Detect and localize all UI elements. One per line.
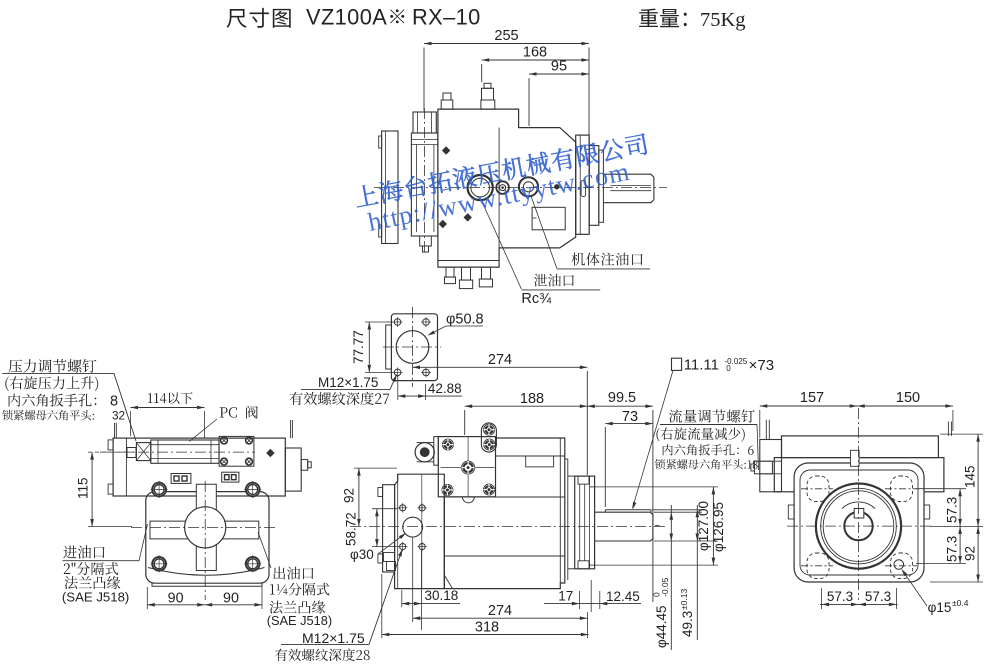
svg-text:318: 318 xyxy=(475,620,499,636)
svg-text:92: 92 xyxy=(342,488,357,503)
svg-text:57.3: 57.3 xyxy=(865,589,891,604)
svg-text:57.3: 57.3 xyxy=(945,536,960,562)
svg-text:99.5: 99.5 xyxy=(608,390,636,406)
svg-text:168: 168 xyxy=(523,45,547,61)
svg-text:92: 92 xyxy=(963,546,978,561)
svg-text:×73: ×73 xyxy=(749,357,774,374)
svg-text:Rc¾: Rc¾ xyxy=(521,291,552,307)
svg-text:(SAE J518): (SAE J518) xyxy=(62,590,129,605)
svg-text:VZ100A: VZ100A xyxy=(306,5,387,30)
svg-text:157: 157 xyxy=(800,390,824,406)
svg-text:-0.05: -0.05 xyxy=(660,577,670,597)
svg-text:φ30: φ30 xyxy=(350,547,374,562)
svg-text:8: 8 xyxy=(110,394,118,410)
svg-text:11.11: 11.11 xyxy=(684,356,719,373)
svg-text:M12×1.75: M12×1.75 xyxy=(302,630,365,646)
svg-text:φ126.95: φ126.95 xyxy=(711,502,726,552)
svg-text:145: 145 xyxy=(963,465,978,488)
svg-text:M12×1.75: M12×1.75 xyxy=(318,375,378,390)
svg-text:φ15: φ15 xyxy=(928,600,952,615)
svg-text:115: 115 xyxy=(76,477,91,499)
svg-text:φ44.45: φ44.45 xyxy=(654,605,669,648)
svg-text:42.88: 42.88 xyxy=(428,381,462,396)
svg-text:(SAE J518): (SAE J518) xyxy=(267,613,332,628)
svg-text:75Kg: 75Kg xyxy=(700,9,746,31)
svg-text:±0.13: ±0.13 xyxy=(679,589,689,610)
svg-text:12.45: 12.45 xyxy=(606,589,640,604)
svg-text:77.77: 77.77 xyxy=(351,330,366,364)
svg-text:188: 188 xyxy=(520,391,544,407)
svg-text:±0.4: ±0.4 xyxy=(952,598,969,608)
svg-text:90: 90 xyxy=(223,591,239,607)
svg-text:57.3: 57.3 xyxy=(945,497,960,523)
svg-text:49.3: 49.3 xyxy=(680,611,695,637)
svg-text:0: 0 xyxy=(726,364,731,373)
svg-text:90: 90 xyxy=(168,591,184,607)
svg-text:φ50.8: φ50.8 xyxy=(446,312,484,328)
svg-text:150: 150 xyxy=(896,390,920,406)
svg-text:φ127.00: φ127.00 xyxy=(696,501,711,551)
svg-text:255: 255 xyxy=(494,28,518,44)
svg-text:32: 32 xyxy=(112,409,125,423)
svg-text:274: 274 xyxy=(488,603,512,619)
svg-text:17: 17 xyxy=(558,589,573,604)
svg-text:30.18: 30.18 xyxy=(425,588,459,603)
svg-text:58.72: 58.72 xyxy=(344,512,359,546)
svg-text:274: 274 xyxy=(488,352,512,368)
svg-text:RX–10: RX–10 xyxy=(412,5,481,30)
svg-text:73: 73 xyxy=(622,409,638,425)
svg-text:57.3: 57.3 xyxy=(827,589,853,604)
svg-text:95: 95 xyxy=(551,59,567,75)
